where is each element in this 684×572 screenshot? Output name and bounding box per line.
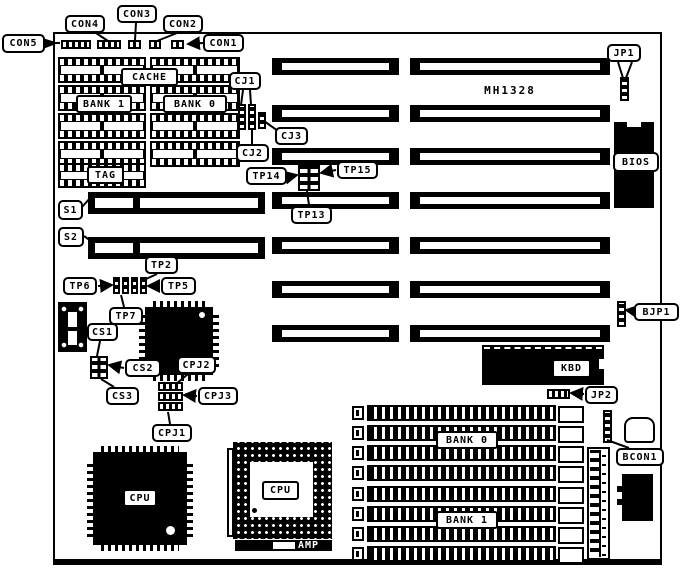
simm-socket [352, 546, 584, 562]
amp-label: AMP [298, 540, 319, 551]
bios-chip-notch [627, 122, 641, 127]
callout-con4: CON4 [65, 15, 105, 33]
callout-tp6: TP6 [63, 277, 97, 295]
keyboard-port-pin [617, 499, 622, 505]
callout-tp15: TP15 [337, 161, 378, 179]
callout-bjp1: BJP1 [634, 303, 679, 321]
callout-tp2: TP2 [145, 256, 178, 274]
con2-connector [149, 40, 161, 49]
simm-socket [352, 486, 584, 502]
con4-connector [97, 40, 121, 49]
expansion-slot [410, 58, 610, 75]
callout-cj2: CJ2 [236, 144, 269, 162]
mounting-bracket [58, 302, 87, 352]
callout-con1: CON1 [203, 34, 244, 52]
keyboard-port-pin [617, 486, 622, 492]
cj2-jumper [248, 104, 256, 130]
expansion-slot [410, 105, 610, 122]
cs-jumper-block [90, 356, 108, 379]
s1-slot [88, 192, 265, 214]
simm-socket [352, 465, 584, 481]
cpj-jumper [158, 392, 183, 401]
bjp1-jumper [617, 301, 626, 327]
con5-connector [61, 40, 91, 49]
motherboard-diagram: CACHE BANK 1 BANK 0 TAG [0, 0, 684, 572]
expansion-slot [272, 325, 399, 342]
callout-tp13: TP13 [291, 206, 332, 224]
expansion-slot [272, 58, 399, 75]
board-model-text: MH1328 [474, 84, 546, 97]
cache-chip [150, 141, 240, 167]
cj1-jumper [238, 104, 246, 130]
pga-bottom-window [273, 542, 295, 549]
callout-s1: S1 [58, 200, 83, 220]
cache-bank0-label: BANK 0 [163, 95, 227, 113]
power-connector [587, 447, 610, 560]
s2-slot [88, 237, 265, 259]
cache-chip [150, 113, 240, 139]
con3-connector [128, 40, 141, 49]
callout-cs3: CS3 [106, 387, 139, 405]
expansion-slot [272, 105, 399, 122]
callout-cj3: CJ3 [275, 127, 308, 145]
simm-bank1-label: BANK 1 [436, 511, 498, 529]
cpj-jumper [158, 402, 183, 411]
kbd-label: KBD [552, 359, 591, 378]
jp2-jumper [547, 389, 570, 399]
bcon1-connector [603, 410, 612, 443]
expansion-slot [272, 192, 399, 209]
callout-tp14: TP14 [246, 167, 287, 185]
keyboard-port-block [622, 474, 653, 521]
callout-cs2: CS2 [125, 359, 161, 377]
expansion-slot [410, 325, 610, 342]
cache-label: CACHE [121, 68, 178, 86]
callout-s2: S2 [58, 227, 84, 247]
callout-jp2: JP2 [585, 386, 618, 404]
expansion-slot [410, 237, 610, 254]
cpu-pga-label: CPU [262, 481, 299, 500]
tp-jumper [122, 277, 129, 294]
con1-connector [171, 40, 184, 49]
callout-bcon1: BCON1 [616, 448, 664, 466]
cj3-jumper [258, 112, 266, 129]
simm-bank0-label: BANK 0 [436, 431, 498, 449]
cache-bank1-label: BANK 1 [76, 95, 132, 113]
expansion-slot [272, 148, 399, 165]
callout-cs1: CS1 [87, 323, 118, 341]
expansion-slot [272, 237, 399, 254]
callout-cpj2: CPJ2 [177, 356, 216, 374]
jp1-jumper [620, 77, 629, 101]
expansion-slot [410, 148, 610, 165]
tp13-tp14-tp15-jumper-block [298, 164, 320, 191]
pga-lever [227, 448, 234, 537]
cache-chip [58, 113, 146, 139]
callout-bios: BIOS [613, 152, 659, 172]
callout-cpj3: CPJ3 [198, 387, 238, 405]
callout-con3: CON3 [117, 5, 157, 23]
tp-jumper [140, 277, 147, 294]
tp-jumper [131, 277, 138, 294]
callout-jp1: JP1 [607, 44, 641, 62]
callout-con5: CON5 [2, 34, 45, 53]
expansion-slot [272, 281, 399, 298]
tag-label: TAG [87, 166, 124, 184]
simm-socket [352, 405, 584, 421]
callout-cj1: CJ1 [229, 72, 261, 90]
cpj-jumper [158, 382, 183, 391]
cpu-qfp-label: CPU [123, 489, 157, 507]
tp-jumper [113, 277, 120, 294]
expansion-slot [410, 281, 610, 298]
callout-cpj1: CPJ1 [152, 424, 192, 442]
expansion-slot [410, 192, 610, 209]
callout-con2: CON2 [163, 15, 203, 33]
keyboard-din-connector [624, 417, 655, 443]
callout-tp5: TP5 [161, 277, 196, 295]
